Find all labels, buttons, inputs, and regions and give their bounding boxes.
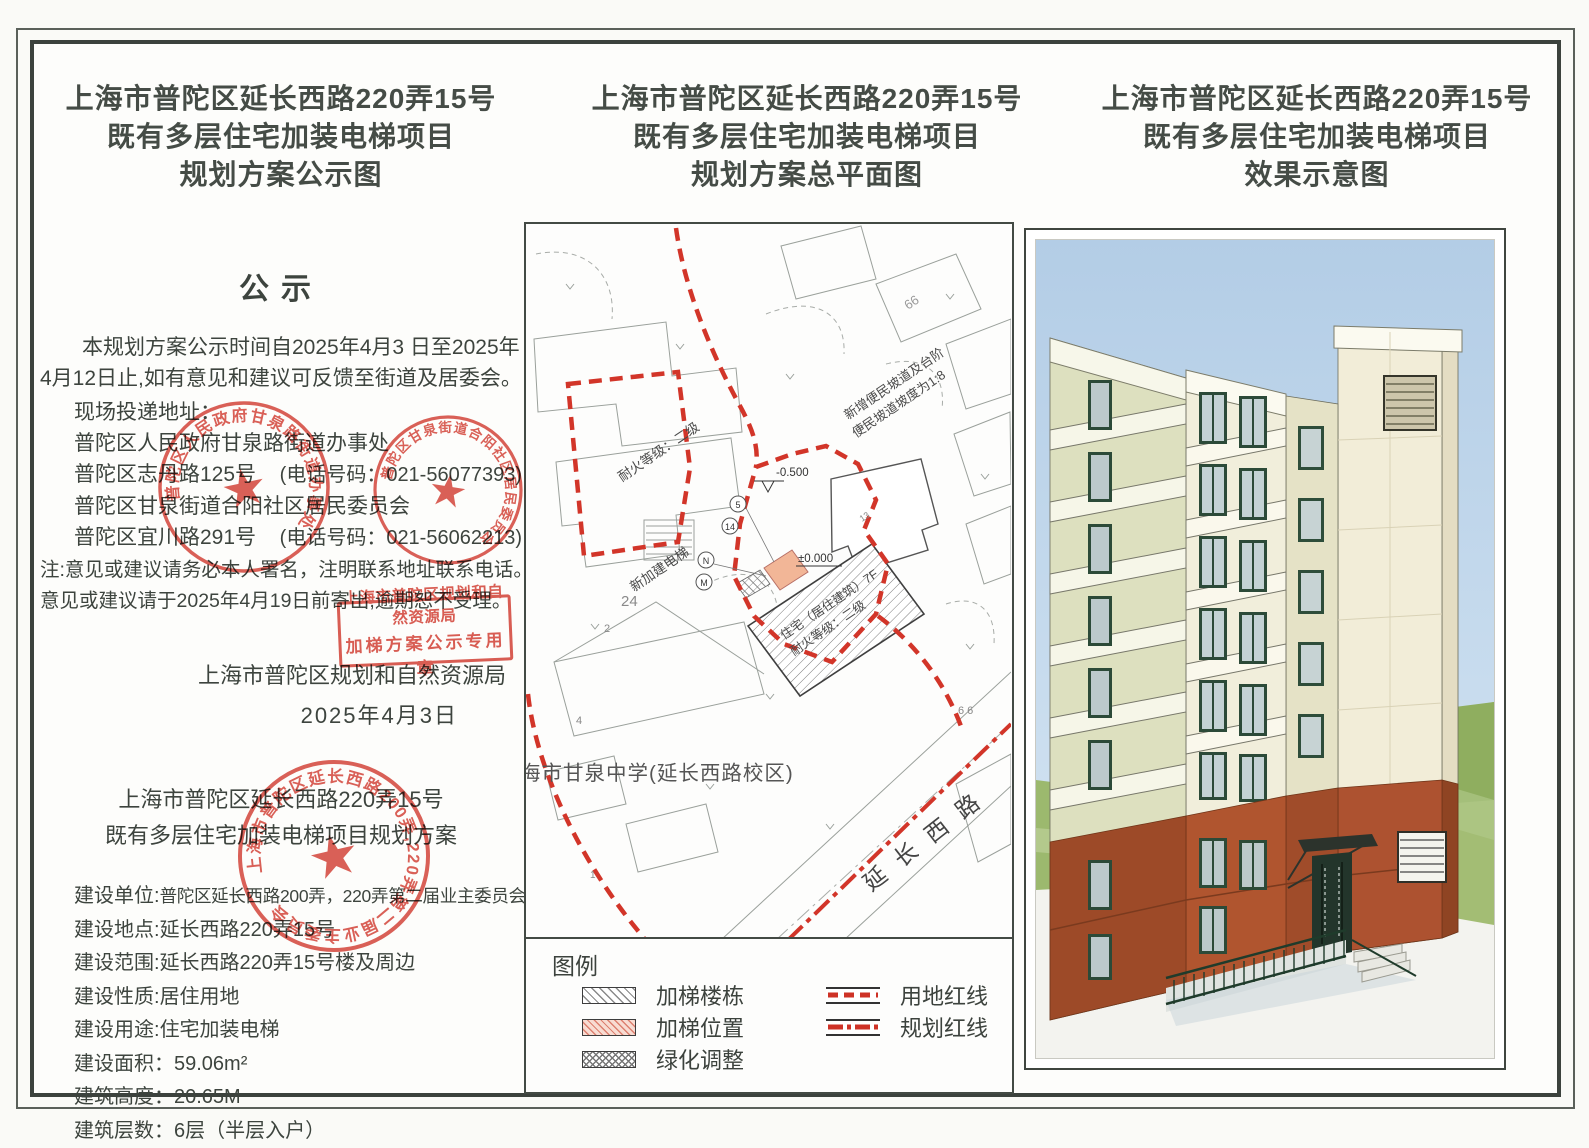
legend-label: 用地红线 (900, 979, 988, 1011)
land-redline-swatch (826, 987, 880, 1004)
legend-item: 规划红线 (826, 1011, 988, 1043)
field-label: 建设范围: (74, 947, 160, 981)
map-level-label: -0.500 (776, 467, 809, 479)
address-intro: 现场投递地址： (40, 397, 522, 428)
field-label: 建设单位: (74, 880, 160, 914)
notice-note: 注:意见或建议请务必本人署名，注明联系地址联系电话。 (40, 555, 522, 585)
title-line: 规划方案总平面图 (568, 156, 1046, 194)
field-label: 建筑层数： (74, 1115, 174, 1148)
address-row: 普陀区宜川路291号 (电话号码：021-56062213) (40, 522, 522, 554)
address-row: 普陀区人民政府甘泉路街道办事处 (40, 428, 522, 459)
subtitle-line: 既有多层住宅加装电梯项目规划方案 (40, 818, 522, 854)
title-line: 上海市普陀区延长西路220弄15号 (568, 80, 1046, 118)
field-row: 建设面积： 59.06m² (74, 1048, 522, 1082)
notice-panel: 公示 本规划方案公示时间自2025年4月3 日至2025年4月12日止,如有意见… (40, 252, 522, 1148)
field-value: 普陀区延长西路200弄，220弄第二届业主委员会 (160, 880, 526, 914)
title-line: 既有多层住宅加装电梯项目 (568, 118, 1046, 156)
field-row: 建设用途: 住宅加装电梯 (74, 1014, 522, 1048)
elevator-position-swatch (582, 1019, 636, 1036)
stamp-line: 加梯方案公示专用章 (341, 625, 511, 682)
field-row: 建设单位: 普陀区延长西路200弄，220弄第二届业主委员会 (74, 880, 522, 914)
legend-label: 加梯位置 (656, 1011, 744, 1043)
map-marker-label: N (703, 556, 710, 566)
map-school-label: 海市甘泉中学(延长西路校区) (526, 762, 794, 785)
legend-item: 绿化调整 (582, 1043, 744, 1075)
greenery-adjust-swatch (582, 1051, 636, 1068)
project-subtitle: 上海市普陀区延长西路220弄15号 既有多层住宅加装电梯项目规划方案 (40, 782, 522, 854)
publication-date: 2025年4月3日 (40, 698, 522, 730)
field-row: 建筑高度： 20.65M (74, 1081, 522, 1115)
field-label: 建设地点: (74, 914, 160, 948)
left-panel-title: 上海市普陀区延长西路220弄15号 既有多层住宅加装电梯项目 规划方案公示图 (42, 80, 520, 194)
map-plot-number: 2 (604, 623, 610, 635)
address-name: 普陀区甘泉街道合阳社区居民委员会 (74, 491, 410, 522)
field-value: 59.06m² (174, 1048, 247, 1082)
legend-item: 用地红线 (826, 979, 988, 1011)
notice-paragraph: 本规划方案公示时间自2025年4月3 日至2025年4月12日止,如有意见和建议… (40, 332, 522, 394)
field-row: 建设地点: 延长西路220弄15号 (74, 914, 522, 948)
field-label: 建筑高度： (74, 1081, 174, 1115)
title-line: 上海市普陀区延长西路220弄15号 (42, 80, 520, 118)
legend-item: 加梯楼栋 (582, 979, 744, 1011)
address-phone: (电话号码：021-56062213) (280, 523, 522, 554)
legend-label: 规划红线 (900, 1011, 988, 1043)
map-marker-label: 5 (735, 500, 740, 510)
field-label: 建设用途: (74, 1014, 160, 1048)
legend-label: 加梯楼栋 (656, 979, 744, 1011)
subtitle-line: 上海市普陀区延长西路220弄15号 (40, 782, 522, 818)
map-marker-label: M (700, 578, 708, 588)
field-label: 建设性质: (74, 981, 160, 1015)
field-row: 建筑层数： 6层（半层入户） (74, 1115, 522, 1148)
title-line: 既有多层住宅加装电梯项目 (42, 118, 520, 156)
legend-label: 绿化调整 (656, 1043, 744, 1075)
field-label: 建设面积： (74, 1048, 174, 1082)
middle-panel-title: 上海市普陀区延长西路220弄15号 既有多层住宅加装电梯项目 规划方案总平面图 (568, 80, 1046, 194)
map-plot-number: 24 (621, 593, 638, 610)
address-name: 普陀区志丹路125号 (74, 459, 256, 490)
field-value: 20.65M (174, 1081, 241, 1115)
hatch-building-swatch (582, 987, 636, 1004)
project-fields: 建设单位: 普陀区延长西路200弄，220弄第二届业主委员会 建设地点: 延长西… (40, 880, 522, 1148)
field-row: 建设范围: 延长西路220弄15号楼及周边 (74, 947, 522, 981)
map-plot-number: 6 6 (958, 705, 973, 717)
address-row: 普陀区志丹路125号 (电话号码：021-56077393) (40, 459, 522, 491)
field-value: 居住用地 (160, 981, 240, 1015)
address-name: 普陀区人民政府甘泉路街道办事处 (74, 428, 389, 459)
notice-heading: 公示 (40, 264, 522, 308)
map-legend: 图例 加梯楼栋 加梯位置 绿化调整 用地红线 规划红线 (526, 937, 1012, 1092)
planning-redline-swatch (826, 1019, 880, 1036)
site-plan-map: 5 14 N M -0.500 ±0.000 耐火等级：二级 新加建电梯 新增便… (526, 224, 1011, 940)
planning-bureau-stamp: 上海市普陀区规划和自然资源局 加梯方案公示专用章 (337, 594, 514, 668)
legend-title: 图例 (552, 947, 598, 981)
field-value: 住宅加装电梯 (160, 1014, 280, 1048)
title-line: 既有多层住宅加装电梯项目 (1086, 118, 1548, 156)
field-value: 6层（半层入户） (174, 1115, 325, 1148)
stamp-line: 上海市普陀区规划和自然资源局 (339, 579, 509, 630)
tower-lower-grille (1398, 832, 1446, 882)
address-name: 普陀区宜川路291号 (74, 522, 256, 553)
map-level-label: ±0.000 (798, 553, 833, 565)
legend-item: 加梯位置 (582, 1011, 744, 1043)
map-plot-number: 4 (576, 715, 582, 727)
map-marker-label: 14 (725, 522, 735, 532)
right-panel-title: 上海市普陀区延长西路220弄15号 既有多层住宅加装电梯项目 效果示意图 (1086, 80, 1548, 194)
site-plan-panel: 5 14 N M -0.500 ±0.000 耐火等级：二级 新加建电梯 新增便… (524, 222, 1014, 1094)
title-line: 效果示意图 (1086, 156, 1548, 194)
title-line: 规划方案公示图 (42, 156, 520, 194)
building-rendering (1036, 240, 1494, 1058)
title-line: 上海市普陀区延长西路220弄15号 (1086, 80, 1548, 118)
rendering-panel (1024, 228, 1506, 1070)
address-phone: (电话号码：021-56077393) (280, 460, 522, 491)
field-value: 延长西路220弄15号 (160, 914, 336, 948)
field-value: 延长西路220弄15号楼及周边 (160, 947, 416, 981)
address-row: 普陀区甘泉街道合阳社区居民委员会 (40, 491, 522, 522)
map-plot-number: 1 (590, 870, 596, 881)
field-row: 建设性质: 居住用地 (74, 981, 522, 1015)
